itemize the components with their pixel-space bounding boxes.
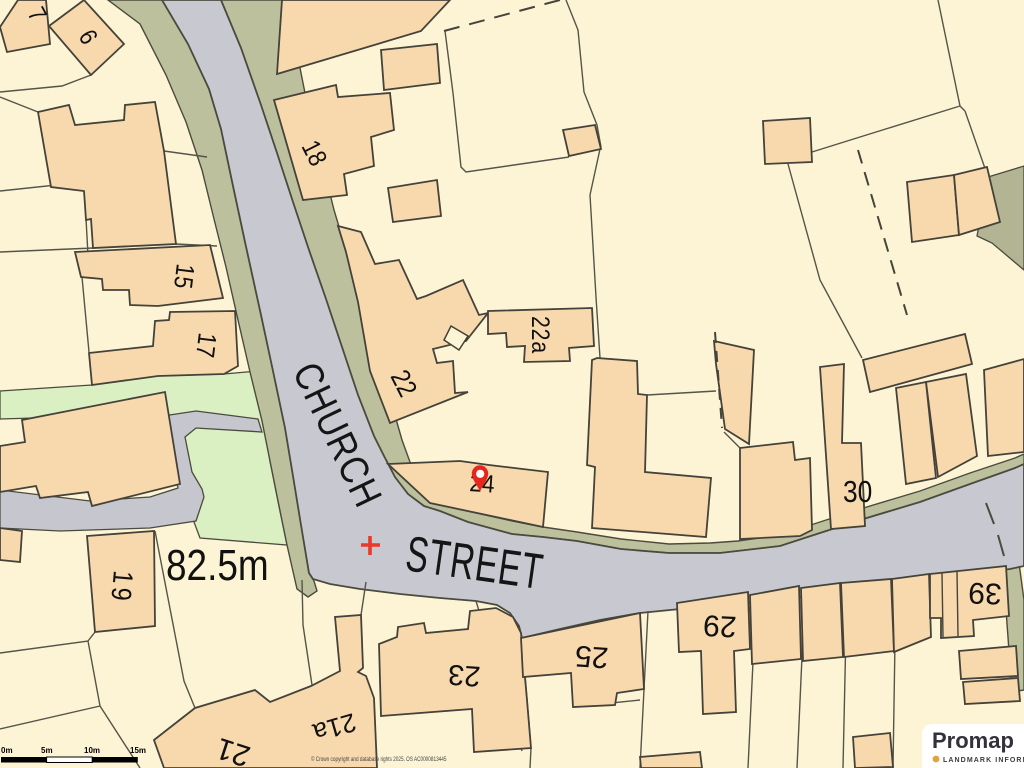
svg-text:17: 17 [190,331,222,359]
svg-text:29: 29 [702,608,737,643]
svg-text:0m: 0m [1,746,13,755]
svg-text:25: 25 [574,639,610,674]
svg-text:© Crown copyright and database: © Crown copyright and database rights 20… [311,755,446,763]
svg-text:19: 19 [105,569,140,605]
svg-text:5m: 5m [41,746,53,755]
svg-text:30: 30 [843,475,872,509]
svg-text:LANDMARK INFORMATION: LANDMARK INFORMATION [943,757,1024,764]
svg-text:39: 39 [968,576,1003,610]
svg-text:10m: 10m [84,746,100,755]
svg-text:15: 15 [168,262,200,290]
svg-text:Promap: Promap [932,728,1014,753]
svg-text:82.5m: 82.5m [166,540,269,590]
svg-text:22a: 22a [527,316,555,354]
svg-text:23: 23 [447,658,481,692]
svg-text:15m: 15m [130,746,146,755]
